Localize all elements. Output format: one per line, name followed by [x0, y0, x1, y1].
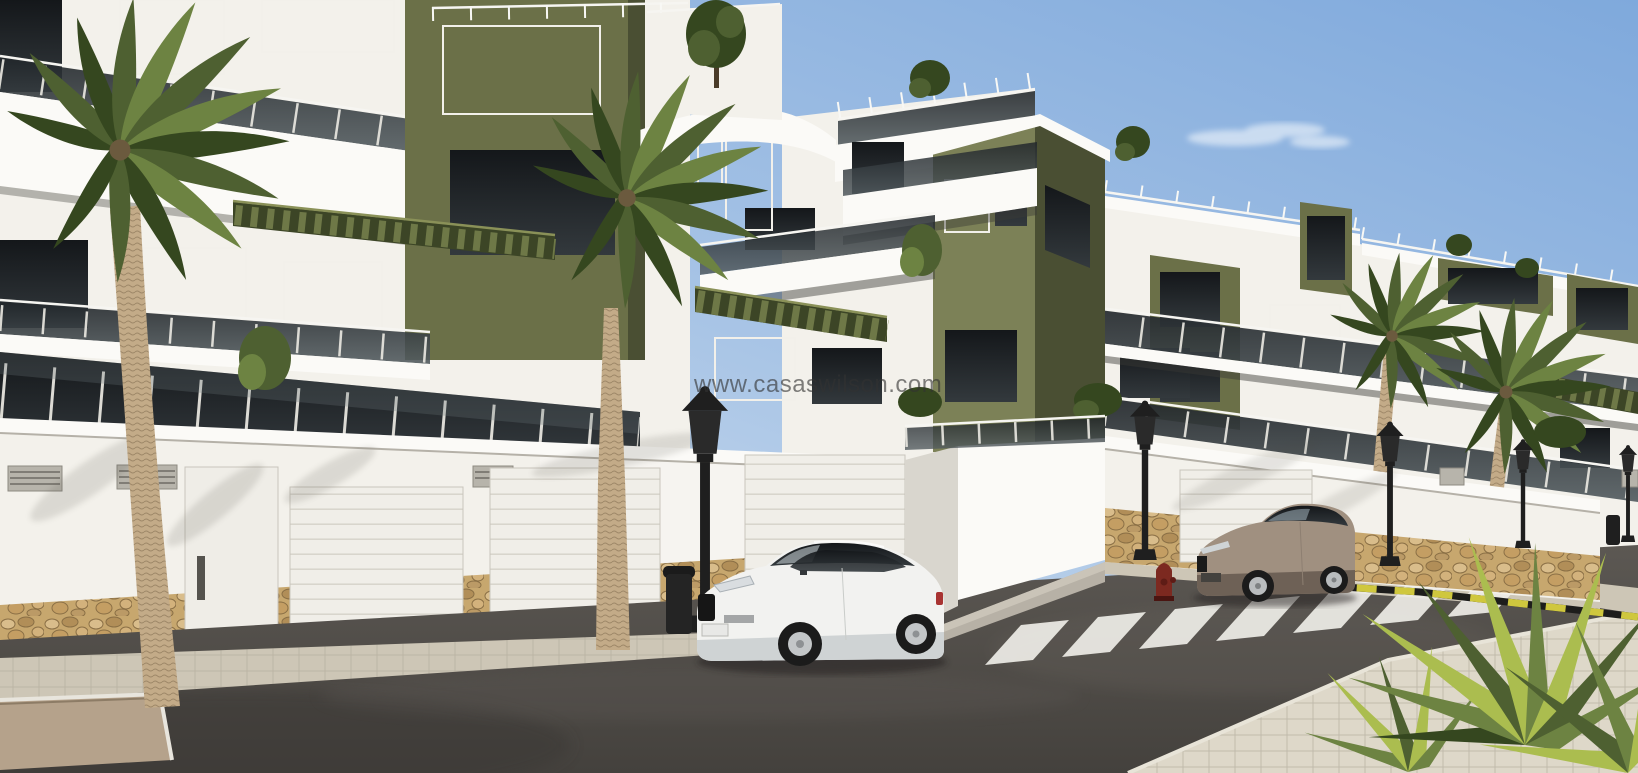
litter-bin [663, 566, 695, 634]
render-image: www.casaswilson.com [0, 0, 1638, 773]
watermark-text: www.casaswilson.com [694, 371, 942, 399]
door-handle [197, 556, 205, 600]
litter-bin-far [1606, 515, 1620, 545]
